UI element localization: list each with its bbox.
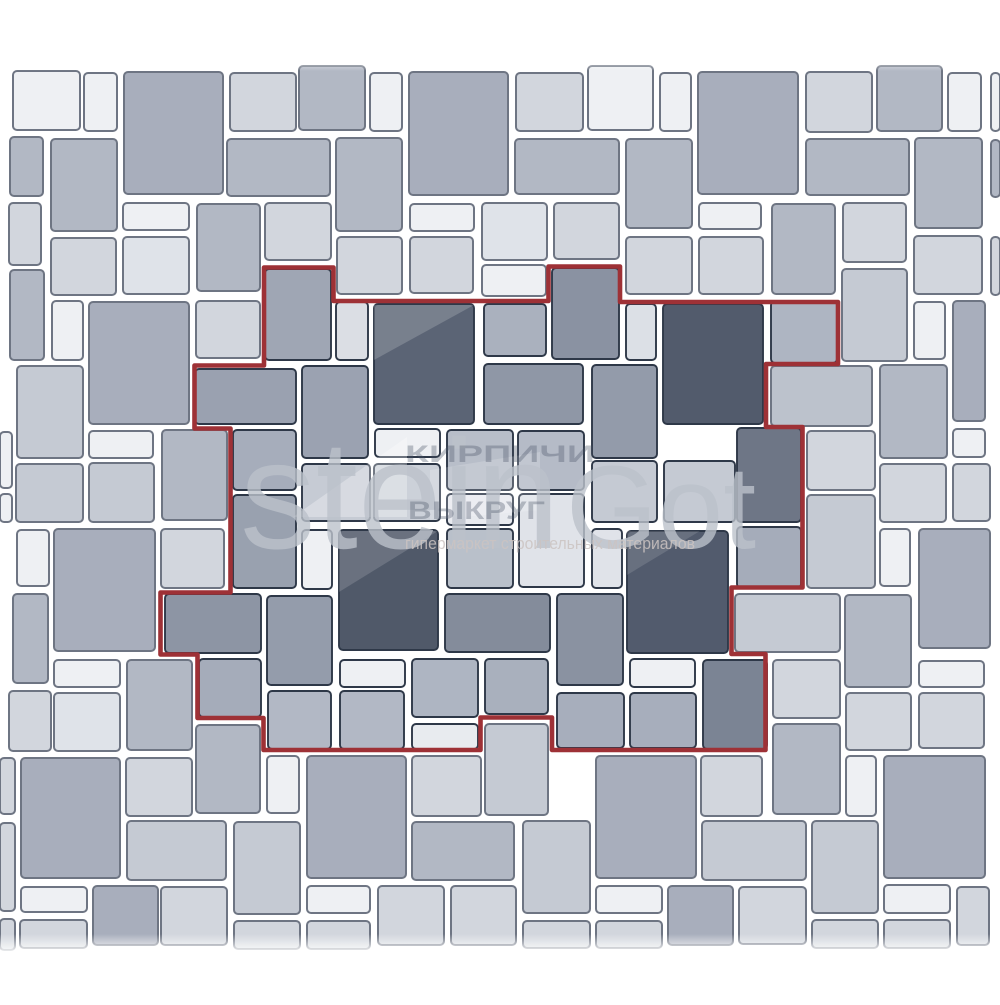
svg-text:stein: stein: [240, 408, 560, 581]
svg-text:КИРПИЧИ: КИРПИЧИ: [405, 441, 595, 468]
svg-text:гипермаркет строительных матер: гипермаркет строительных материалов: [405, 534, 695, 553]
svg-text:ВЫКРУГ: ВЫКРУГ: [408, 497, 545, 525]
